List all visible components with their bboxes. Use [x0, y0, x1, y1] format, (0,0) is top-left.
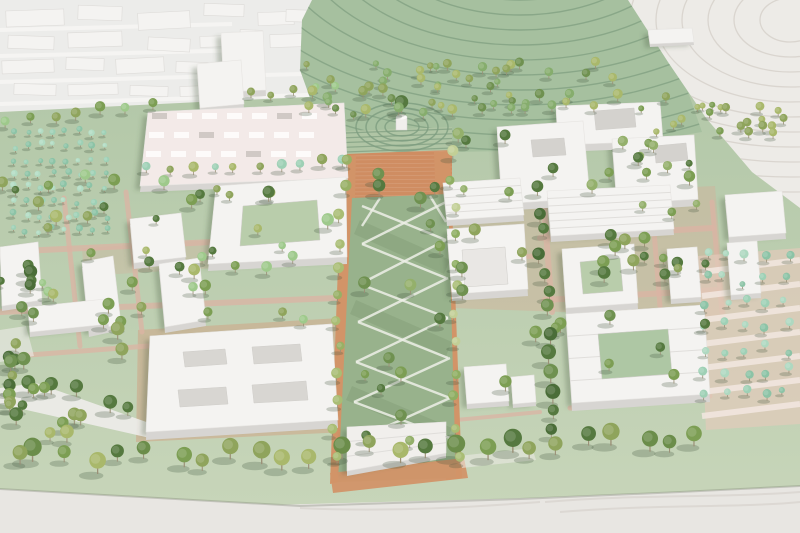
tree-highlight — [435, 84, 439, 88]
tree-shadow — [294, 325, 307, 329]
tree-highlight — [717, 128, 721, 132]
tree-shadow — [355, 450, 374, 456]
tree-shadow — [441, 116, 455, 121]
tree-shadow — [764, 138, 776, 142]
city-block — [2, 59, 54, 74]
tree-highlight — [138, 442, 146, 450]
tree-highlight — [323, 215, 330, 222]
tree-highlight — [334, 264, 340, 270]
tree-shadow — [101, 222, 109, 225]
tree-shadow — [657, 102, 669, 106]
skylight — [227, 113, 242, 119]
tree-highlight — [257, 163, 261, 167]
tree-shadow — [1, 423, 21, 430]
tree-highlight — [14, 447, 23, 456]
tree-shadow — [73, 133, 82, 136]
tree-highlight — [686, 161, 690, 165]
tree-highlight — [660, 255, 665, 260]
tree-highlight — [639, 106, 642, 109]
tree-highlight — [452, 338, 457, 343]
tree-shadow — [6, 217, 16, 220]
tree-highlight — [668, 208, 673, 213]
building-roof — [197, 60, 244, 108]
tree-shadow — [449, 298, 467, 304]
tree-shadow — [71, 207, 78, 209]
tree-highlight — [726, 300, 730, 304]
tree-shadow — [712, 136, 723, 140]
skylight — [196, 151, 211, 157]
tree-highlight — [491, 101, 495, 105]
tree-shadow — [755, 309, 768, 313]
tree-highlight — [337, 343, 342, 348]
tree-highlight — [606, 230, 613, 237]
tree-highlight — [159, 177, 166, 184]
tree-highlight — [49, 159, 53, 163]
tree-highlight — [45, 428, 51, 434]
tree-shadow — [456, 194, 467, 198]
tree-highlight — [643, 432, 652, 441]
tree-shadow — [35, 164, 42, 166]
tree-highlight — [189, 265, 196, 272]
tree-highlight — [590, 102, 595, 107]
skylight — [224, 132, 239, 138]
tree-highlight — [254, 443, 264, 453]
tree-shadow — [770, 115, 780, 118]
tree-shadow — [98, 136, 106, 139]
tree-shadow — [101, 176, 108, 178]
skylight — [271, 151, 286, 157]
tree-shadow — [388, 380, 405, 386]
tree-highlight — [787, 252, 792, 257]
tree-shadow — [325, 380, 341, 385]
tree-shadow — [34, 221, 42, 223]
tree-shadow — [446, 213, 459, 217]
tree-highlight — [429, 100, 433, 104]
tree-shadow — [352, 97, 366, 102]
tree-highlight — [394, 103, 400, 109]
tree-highlight — [341, 181, 348, 188]
tree-highlight — [27, 130, 30, 133]
tree-shadow — [757, 379, 769, 383]
city-block — [14, 83, 56, 95]
tree-shadow — [7, 135, 16, 138]
tree-highlight — [705, 249, 710, 254]
tree-highlight — [254, 225, 259, 230]
tree-highlight — [50, 130, 54, 134]
tree-highlight — [605, 311, 612, 318]
tree-highlight — [770, 129, 775, 134]
tree-shadow — [73, 193, 83, 196]
tree-highlight — [435, 314, 442, 321]
tree-highlight — [394, 444, 403, 453]
tree-shadow — [722, 307, 731, 310]
tree-highlight — [26, 142, 29, 145]
tree-highlight — [702, 260, 707, 265]
tree-highlight — [39, 140, 43, 144]
tree-highlight — [81, 171, 87, 177]
tree-shadow — [635, 112, 644, 115]
roof-opening — [246, 151, 261, 157]
tree-shadow — [434, 110, 444, 113]
tree-highlight — [481, 440, 491, 450]
tree-shadow — [775, 123, 787, 127]
tree-shadow — [46, 220, 53, 222]
tree-shadow — [627, 164, 642, 169]
tree-highlight — [231, 262, 236, 267]
tree-highlight — [35, 172, 39, 176]
tree-shadow — [598, 370, 612, 375]
tree-shadow — [255, 200, 273, 206]
tree-highlight — [334, 291, 339, 296]
tree-shadow — [676, 444, 699, 452]
tree-highlight — [405, 280, 412, 287]
tree-highlight — [741, 349, 745, 353]
tree-highlight — [87, 249, 92, 254]
tree-shadow — [84, 137, 94, 140]
tree-highlight — [542, 300, 549, 307]
tree-highlight — [449, 391, 455, 397]
tree-highlight — [762, 341, 767, 346]
tree-shadow — [35, 147, 45, 150]
tree-highlight — [756, 103, 761, 108]
tree-highlight — [104, 171, 107, 174]
tree-highlight — [436, 242, 442, 248]
tree-shadow — [314, 228, 332, 234]
tree-shadow — [49, 175, 56, 177]
tree-shadow — [79, 472, 103, 480]
tree-shadow — [333, 193, 350, 198]
tree-highlight — [26, 280, 33, 287]
tree-shadow — [84, 150, 94, 153]
tree-shadow — [101, 232, 109, 235]
tree-highlight — [549, 438, 557, 446]
courtyard — [240, 200, 320, 246]
tree-highlight — [505, 188, 511, 194]
tree-highlight — [656, 343, 662, 349]
tree-highlight — [760, 324, 765, 329]
tree-shadow — [58, 134, 66, 137]
tree-highlight — [278, 160, 284, 166]
tree-highlight — [26, 213, 30, 217]
tree-highlight — [6, 401, 12, 407]
tree-shadow — [59, 166, 68, 169]
tree-highlight — [384, 69, 389, 74]
tree-highlight — [641, 253, 646, 258]
tree-highlight — [11, 226, 14, 229]
tree-shadow — [326, 407, 341, 412]
tree-highlight — [189, 283, 195, 289]
tree-highlight — [66, 169, 70, 173]
tree-shadow — [632, 449, 656, 457]
tree-shadow — [383, 104, 395, 108]
tree-highlight — [18, 353, 26, 361]
courtyard — [531, 138, 566, 157]
tree-highlight — [178, 449, 187, 458]
tree-highlight — [763, 252, 768, 257]
architectural-model-photo — [0, 0, 800, 533]
tree-shadow — [45, 166, 55, 169]
tree-highlight — [262, 262, 268, 268]
tree-shadow — [736, 356, 746, 359]
tree-highlight — [58, 418, 65, 425]
tree-shadow — [753, 131, 766, 135]
tree-shadow — [327, 113, 338, 117]
tree-highlight — [328, 425, 334, 431]
tree-highlight — [634, 153, 640, 159]
tree-highlight — [743, 119, 748, 124]
tree-shadow — [430, 92, 440, 95]
tree-shadow — [580, 192, 596, 197]
tree-shadow — [58, 233, 65, 235]
tree-highlight — [462, 137, 468, 143]
tree-highlight — [380, 78, 385, 83]
tree-highlight — [549, 164, 555, 170]
tree-shadow — [778, 281, 789, 285]
tree-highlight — [198, 253, 204, 259]
tree-shadow — [138, 268, 153, 273]
tree-highlight — [417, 67, 422, 72]
tree-shadow — [591, 443, 616, 451]
tree-highlight — [50, 141, 53, 144]
tree-shadow — [221, 200, 232, 204]
tree-highlight — [12, 171, 16, 175]
tree-highlight — [664, 436, 672, 444]
tree-highlight — [500, 131, 506, 137]
tree-highlight — [722, 350, 726, 354]
tree-highlight — [384, 353, 391, 360]
tree-shadow — [411, 84, 424, 88]
tree-highlight — [448, 437, 459, 448]
tree-highlight — [533, 249, 540, 256]
tree-highlight — [77, 225, 81, 229]
tree-shadow — [120, 289, 136, 294]
courtyard — [252, 381, 308, 403]
tree-highlight — [521, 104, 526, 109]
tree-shadow — [21, 220, 30, 223]
tree-shadow — [224, 172, 235, 176]
tree-highlight — [103, 299, 110, 306]
tree-highlight — [102, 186, 105, 189]
tree-highlight — [759, 117, 763, 121]
tree-shadow — [695, 399, 707, 403]
tree-highlight — [39, 280, 43, 284]
tree-highlight — [710, 102, 714, 106]
tree-shadow — [21, 178, 30, 181]
tree-shadow — [128, 457, 148, 464]
tree-shadow — [714, 279, 724, 282]
tree-shadow — [167, 465, 190, 472]
tree-highlight — [639, 202, 644, 207]
tree-highlight — [197, 455, 205, 463]
tree-highlight — [761, 300, 766, 305]
tree-highlight — [248, 89, 253, 94]
tree-shadow — [115, 113, 128, 117]
tree-highlight — [740, 250, 745, 255]
tree-highlight — [700, 391, 705, 396]
tree-shadow — [409, 456, 431, 463]
tree-highlight — [420, 109, 425, 114]
tree-shadow — [473, 113, 485, 117]
tree-shadow — [42, 301, 57, 306]
tree-highlight — [29, 384, 36, 391]
tree-shadow — [502, 113, 514, 117]
tree-highlight — [549, 406, 555, 412]
tree-shadow — [7, 178, 17, 181]
tree-highlight — [444, 60, 449, 65]
tree-highlight — [396, 411, 403, 418]
tree-shadow — [20, 204, 29, 207]
tree-shadow — [46, 123, 59, 127]
tree-shadow — [620, 269, 638, 275]
skylight — [146, 151, 161, 157]
tree-shadow — [372, 394, 384, 398]
tree-highlight — [143, 247, 147, 251]
tree-shadow — [576, 79, 588, 83]
tree-shadow — [169, 273, 183, 278]
tree-highlight — [289, 252, 295, 258]
tree-highlight — [96, 102, 102, 108]
tree-highlight — [678, 116, 683, 121]
courtyard — [183, 349, 227, 367]
tree-shadow — [738, 329, 748, 332]
tree-shadow — [22, 148, 31, 151]
tree-highlight — [671, 121, 675, 125]
tree-highlight — [25, 266, 33, 274]
tree-highlight — [351, 112, 355, 116]
tree-highlight — [11, 198, 14, 201]
skylight — [202, 113, 217, 119]
tree-highlight — [76, 159, 79, 162]
tree-highlight — [500, 377, 507, 384]
tree-highlight — [609, 74, 614, 79]
tree-highlight — [760, 274, 764, 278]
tree-highlight — [268, 92, 272, 96]
tree-highlight — [563, 98, 568, 103]
tree-highlight — [643, 169, 648, 174]
skylight — [249, 132, 264, 138]
tree-shadow — [493, 142, 509, 147]
tree-highlight — [693, 201, 697, 205]
tree-shadow — [697, 356, 708, 360]
tree-shadow — [428, 253, 444, 258]
tree-highlight — [396, 368, 403, 375]
tree-highlight — [495, 79, 499, 83]
tree-shadow — [310, 166, 325, 171]
tree-shadow — [757, 399, 770, 403]
tree-shadow — [290, 169, 302, 173]
tree-highlight — [388, 95, 393, 100]
tree-shadow — [750, 112, 763, 116]
tree-highlight — [49, 290, 55, 296]
tree-shadow — [99, 148, 106, 150]
tree-shadow — [449, 464, 463, 469]
tree-highlight — [532, 182, 539, 189]
tree-shadow — [100, 163, 109, 166]
tree-highlight — [542, 346, 551, 355]
tree-shadow — [677, 184, 694, 190]
tree-shadow — [382, 461, 406, 469]
tree-highlight — [104, 157, 107, 160]
tree-highlight — [487, 83, 492, 88]
tree-highlight — [229, 164, 233, 168]
tree-shadow — [31, 178, 40, 181]
tree-highlight — [780, 115, 785, 120]
tree-highlight — [333, 396, 339, 402]
tree-shadow — [264, 468, 288, 476]
tree-highlight — [128, 278, 134, 284]
tree-shadow — [21, 320, 37, 325]
tree-shadow — [533, 314, 552, 320]
city-block — [138, 11, 191, 31]
tree-highlight — [373, 169, 380, 176]
tree-shadow — [18, 236, 27, 239]
tree-shadow — [524, 194, 541, 200]
building-big-slab — [140, 103, 348, 192]
tree-shadow — [69, 219, 78, 222]
building-hill-block — [648, 28, 694, 47]
tree-shadow — [72, 233, 82, 236]
city-block — [68, 83, 118, 96]
courtyard — [252, 344, 302, 364]
tree-shadow — [650, 354, 664, 359]
tree-highlight — [325, 99, 329, 103]
tree-highlight — [539, 224, 545, 230]
tree-highlight — [335, 439, 345, 449]
tree-highlight — [63, 159, 67, 163]
tree-shadow — [541, 175, 557, 180]
tree-highlight — [508, 104, 513, 109]
tree-shadow — [24, 136, 31, 138]
tree-highlight — [545, 287, 552, 294]
tree-highlight — [740, 282, 743, 285]
tree-highlight — [99, 315, 105, 321]
tree-shadow — [209, 194, 220, 198]
tree-shadow — [661, 382, 677, 387]
tree-shadow — [263, 100, 273, 103]
tree-highlight — [374, 181, 381, 188]
tree-highlight — [452, 204, 457, 209]
tree-shadow — [649, 136, 658, 139]
tree-highlight — [725, 389, 729, 393]
tree-highlight — [90, 228, 93, 231]
tree-highlight — [279, 243, 283, 247]
tree-highlight — [71, 109, 77, 115]
tree-shadow — [33, 236, 40, 238]
city-block — [8, 35, 54, 50]
tree-shadow — [46, 136, 55, 139]
tree-highlight — [64, 144, 67, 147]
tree-shadow — [376, 365, 393, 370]
tree-shadow — [461, 238, 479, 244]
tree-highlight — [566, 90, 571, 95]
tree-highlight — [604, 425, 614, 435]
building-roof — [648, 28, 694, 44]
courtyard — [462, 247, 508, 287]
tree-highlight — [143, 163, 148, 168]
tree-highlight — [12, 187, 16, 191]
tree-shadow — [699, 280, 711, 284]
tree-highlight — [27, 114, 32, 119]
tree-shadow — [440, 186, 453, 190]
tree-highlight — [89, 130, 93, 134]
tree-highlight — [92, 210, 96, 214]
tree-shadow — [81, 259, 94, 263]
tree-highlight — [695, 105, 699, 109]
tree-shadow — [666, 129, 676, 132]
tree-highlight — [780, 297, 784, 301]
tree-shadow — [47, 146, 54, 148]
tree-highlight — [744, 296, 749, 301]
